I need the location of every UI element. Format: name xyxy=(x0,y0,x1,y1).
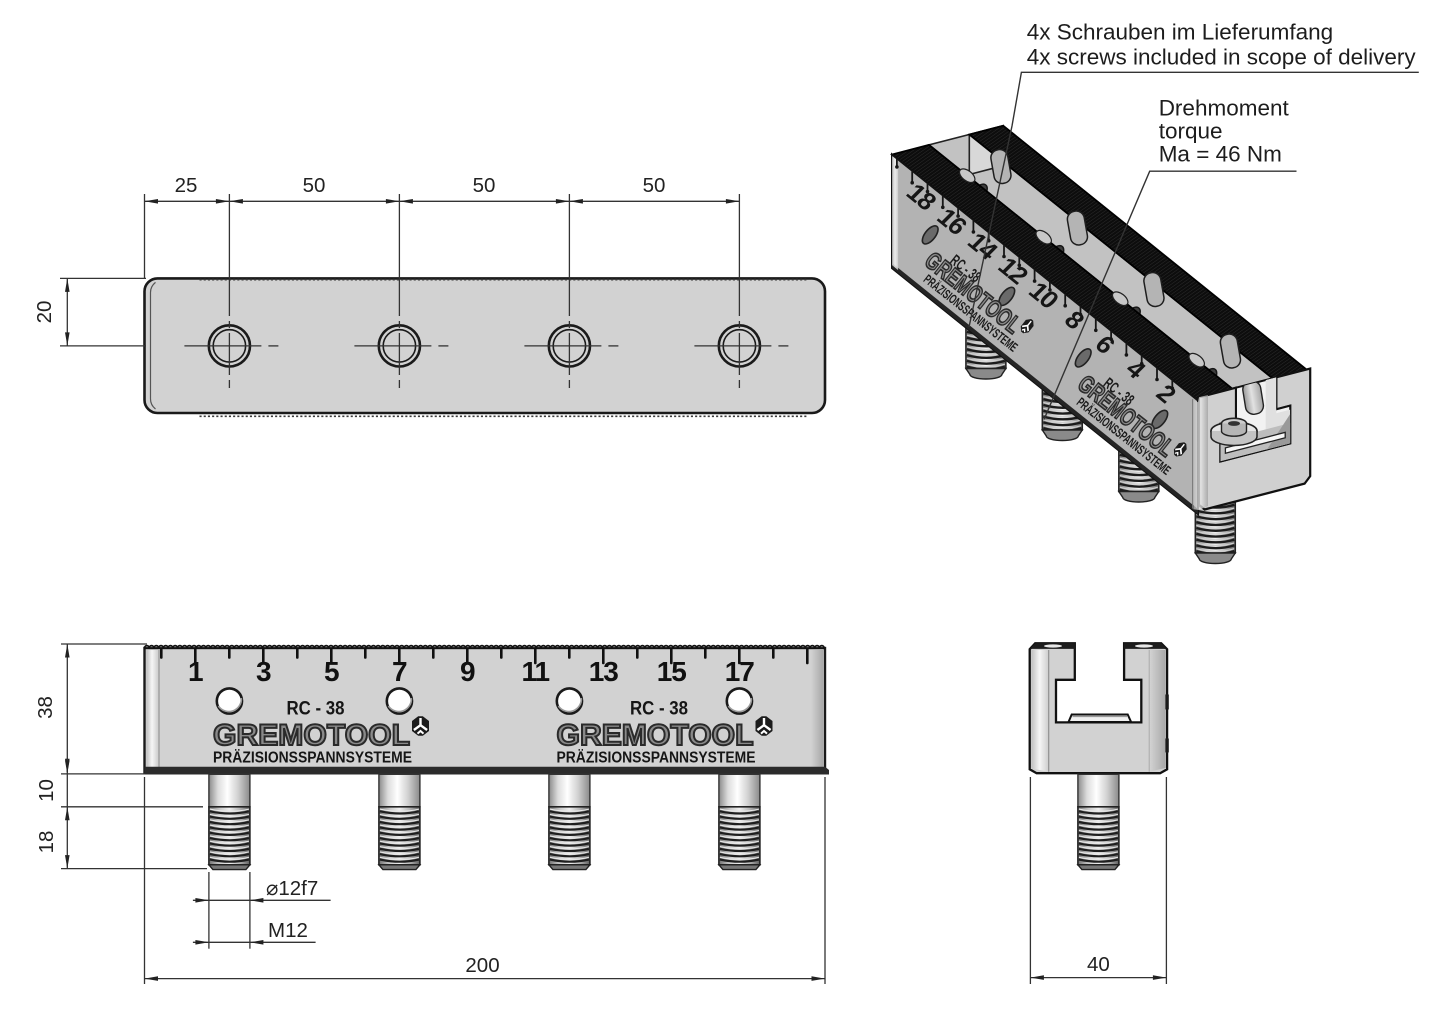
svg-text:50: 50 xyxy=(303,174,326,197)
svg-text:11: 11 xyxy=(521,656,549,687)
svg-text:PRÄZISIONSSPANNSYSTEME: PRÄZISIONSSPANNSYSTEME xyxy=(213,749,412,767)
svg-text:13: 13 xyxy=(589,656,619,687)
svg-text:38: 38 xyxy=(34,696,57,719)
svg-text:10: 10 xyxy=(35,779,58,802)
svg-text:PRÄZISIONSSPANNSYSTEME: PRÄZISIONSSPANNSYSTEME xyxy=(557,749,756,767)
svg-text:4x Schrauben im Lieferumfang: 4x Schrauben im Lieferumfang xyxy=(1027,20,1333,45)
svg-text:M12: M12 xyxy=(268,919,308,942)
svg-text:25: 25 xyxy=(175,174,198,197)
svg-text:40: 40 xyxy=(1087,953,1110,976)
svg-text:50: 50 xyxy=(473,174,496,197)
svg-text:GREMOTOOL: GREMOTOOL xyxy=(557,719,754,752)
svg-text:Drehmoment: Drehmoment xyxy=(1159,96,1290,121)
svg-text:17: 17 xyxy=(725,656,755,687)
svg-text:15: 15 xyxy=(657,656,687,687)
svg-text:RC - 38: RC - 38 xyxy=(287,699,345,720)
svg-text:3: 3 xyxy=(256,656,271,687)
svg-text:9: 9 xyxy=(460,656,475,687)
svg-text:18: 18 xyxy=(35,831,58,854)
svg-text:4x screws included in scope of: 4x screws included in scope of delivery xyxy=(1027,45,1417,70)
svg-text:7: 7 xyxy=(392,656,407,687)
svg-text:20: 20 xyxy=(33,301,56,324)
svg-text:50: 50 xyxy=(643,174,666,197)
svg-text:torque: torque xyxy=(1159,119,1223,144)
svg-text:200: 200 xyxy=(465,954,499,977)
svg-text:Ma = 46 Nm: Ma = 46 Nm xyxy=(1159,142,1282,167)
svg-text:⌀12f7: ⌀12f7 xyxy=(266,877,318,900)
svg-text:RC - 38: RC - 38 xyxy=(630,699,688,720)
svg-text:GREMOTOOL: GREMOTOOL xyxy=(213,719,410,752)
svg-text:1: 1 xyxy=(188,656,203,687)
svg-text:5: 5 xyxy=(324,656,339,687)
